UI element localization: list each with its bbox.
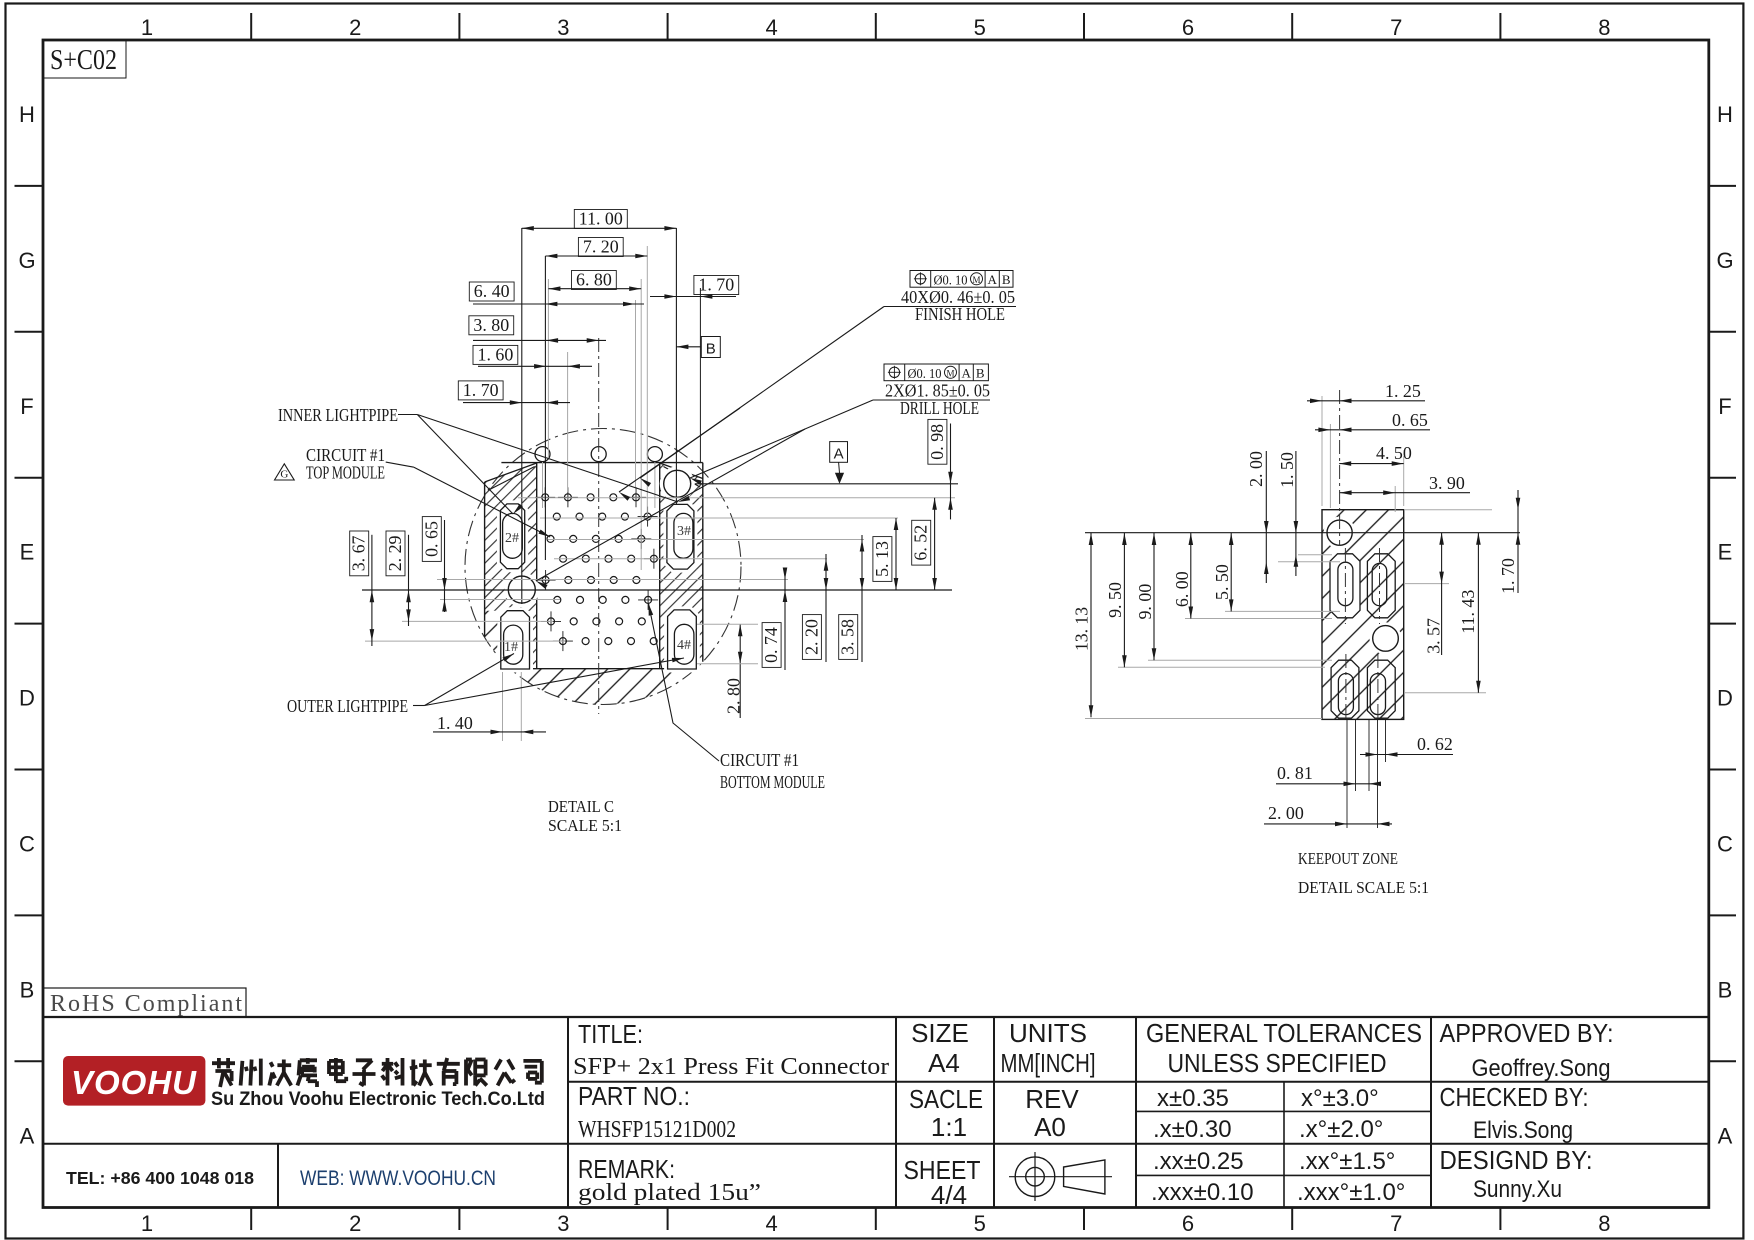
svg-text:F: F bbox=[20, 394, 33, 419]
svg-text:A: A bbox=[20, 1123, 35, 1148]
svg-text:3. 58: 3. 58 bbox=[838, 619, 858, 655]
svg-text:UNLESS SPECIFIED: UNLESS SPECIFIED bbox=[1168, 1048, 1387, 1078]
svg-text:9. 50: 9. 50 bbox=[1105, 582, 1125, 618]
svg-text:S+C02: S+C02 bbox=[50, 45, 117, 76]
svg-text:0. 98: 0. 98 bbox=[927, 424, 947, 460]
svg-text:C: C bbox=[1717, 832, 1733, 857]
svg-text:E: E bbox=[1718, 540, 1733, 565]
svg-text:11. 00: 11. 00 bbox=[579, 209, 623, 229]
svg-text:5. 50: 5. 50 bbox=[1212, 564, 1232, 600]
svg-text:E: E bbox=[20, 540, 35, 565]
svg-text:2. 20: 2. 20 bbox=[801, 619, 821, 655]
svg-text:KEEPOUT ZONE: KEEPOUT ZONE bbox=[1298, 849, 1398, 868]
svg-text:.xx°±1.5°: .xx°±1.5° bbox=[1299, 1148, 1395, 1175]
svg-text:TOP MODULE: TOP MODULE bbox=[306, 463, 385, 483]
svg-text:1. 70: 1. 70 bbox=[1498, 558, 1518, 594]
svg-text:5. 13: 5. 13 bbox=[872, 541, 892, 577]
svg-text:RoHS Compliant: RoHS Compliant bbox=[50, 991, 244, 1017]
svg-text:.xxx°±1.0°: .xxx°±1.0° bbox=[1297, 1179, 1405, 1206]
svg-text:6. 80: 6. 80 bbox=[576, 270, 612, 290]
svg-text:8: 8 bbox=[1598, 1211, 1610, 1236]
svg-text:G: G bbox=[1716, 248, 1733, 273]
svg-text:UNITS: UNITS bbox=[1009, 1018, 1087, 1048]
svg-text:C: C bbox=[19, 832, 35, 857]
svg-text:A0: A0 bbox=[1034, 1112, 1066, 1142]
svg-text:H: H bbox=[1717, 102, 1733, 127]
svg-text:OUTER LIGHTPIPE: OUTER LIGHTPIPE bbox=[287, 696, 408, 716]
svg-text:FINISH HOLE: FINISH HOLE bbox=[915, 304, 1005, 324]
svg-text:.xxx±0.10: .xxx±0.10 bbox=[1151, 1179, 1254, 1206]
svg-text:8: 8 bbox=[1598, 15, 1610, 40]
svg-text:INNER LIGHTPIPE: INNER LIGHTPIPE bbox=[278, 405, 398, 425]
svg-text:11. 43: 11. 43 bbox=[1458, 589, 1478, 633]
svg-text:5: 5 bbox=[974, 15, 986, 40]
svg-text:TEL: +86 400 1048 018: TEL: +86 400 1048 018 bbox=[66, 1168, 254, 1188]
svg-text:WHSFP15121D002: WHSFP15121D002 bbox=[578, 1117, 736, 1143]
svg-text:gold plated 15u”: gold plated 15u” bbox=[578, 1180, 761, 1206]
svg-text:1. 50: 1. 50 bbox=[1277, 452, 1297, 488]
svg-text:BOTTOM MODULE: BOTTOM MODULE bbox=[720, 772, 825, 792]
svg-text:1. 40: 1. 40 bbox=[437, 713, 473, 733]
svg-text:0. 65: 0. 65 bbox=[421, 521, 441, 557]
svg-text:Sunny.Xu: Sunny.Xu bbox=[1473, 1176, 1562, 1203]
svg-text:VOOHU: VOOHU bbox=[71, 1064, 197, 1101]
svg-text:3. 57: 3. 57 bbox=[1423, 618, 1443, 654]
svg-text:B: B bbox=[706, 341, 716, 358]
svg-text:APPROVED BY:: APPROVED BY: bbox=[1440, 1018, 1614, 1048]
svg-text:4: 4 bbox=[765, 15, 777, 40]
svg-text:1. 70: 1. 70 bbox=[463, 380, 499, 400]
svg-text:DETAIL C: DETAIL C bbox=[548, 797, 614, 816]
svg-text:1. 25: 1. 25 bbox=[1385, 381, 1421, 401]
svg-text:PART NO.:: PART NO.: bbox=[578, 1081, 690, 1111]
svg-text:5: 5 bbox=[974, 1211, 986, 1236]
svg-text:WEB: WWW.VOOHU.CN: WEB: WWW.VOOHU.CN bbox=[300, 1167, 496, 1190]
svg-text:.x°±2.0°: .x°±2.0° bbox=[1299, 1116, 1383, 1143]
svg-text:7: 7 bbox=[1390, 15, 1402, 40]
svg-text:2. 80: 2. 80 bbox=[724, 678, 744, 714]
svg-text:13. 13: 13. 13 bbox=[1072, 607, 1092, 651]
svg-text:CHECKED BY:: CHECKED BY: bbox=[1440, 1082, 1589, 1112]
svg-text:B: B bbox=[1002, 272, 1011, 287]
svg-text:9. 00: 9. 00 bbox=[1135, 583, 1155, 619]
svg-text:2: 2 bbox=[349, 15, 361, 40]
svg-text:A: A bbox=[988, 272, 998, 287]
svg-text:DESIGND BY:: DESIGND BY: bbox=[1440, 1145, 1593, 1175]
svg-text:A: A bbox=[962, 366, 972, 381]
svg-text:3. 80: 3. 80 bbox=[473, 315, 509, 335]
svg-text:4. 50: 4. 50 bbox=[1376, 443, 1412, 463]
svg-text:1#: 1# bbox=[504, 640, 518, 655]
svg-text:GENERAL TOLERANCES: GENERAL TOLERANCES bbox=[1146, 1018, 1422, 1048]
svg-text:1: 1 bbox=[141, 15, 153, 40]
svg-text:A: A bbox=[1718, 1123, 1733, 1148]
svg-text:2. 29: 2. 29 bbox=[385, 535, 405, 571]
svg-text:7: 7 bbox=[1390, 1211, 1402, 1236]
svg-text:G: G bbox=[18, 248, 35, 273]
svg-text:Su Zhou Voohu Electronic Tech.: Su Zhou Voohu Electronic Tech.Co.Ltd bbox=[211, 1089, 545, 1110]
svg-text:6. 52: 6. 52 bbox=[911, 525, 931, 561]
svg-text:6. 00: 6. 00 bbox=[1172, 571, 1192, 607]
svg-text:SFP+ 2x1 Press Fit Connector: SFP+ 2x1 Press Fit Connector bbox=[573, 1054, 889, 1080]
svg-text:1: 1 bbox=[141, 1211, 153, 1236]
svg-text:DETAIL SCALE 5:1: DETAIL SCALE 5:1 bbox=[1298, 878, 1429, 897]
svg-text:1:1: 1:1 bbox=[931, 1112, 967, 1142]
svg-text:B: B bbox=[976, 366, 985, 381]
svg-text:D: D bbox=[1717, 686, 1733, 711]
svg-text:4: 4 bbox=[765, 1211, 777, 1236]
svg-text:A: A bbox=[834, 446, 844, 463]
svg-text:Elvis.Song: Elvis.Song bbox=[1473, 1117, 1573, 1144]
svg-text:0. 81: 0. 81 bbox=[1277, 763, 1313, 783]
svg-text:.x±0.30: .x±0.30 bbox=[1153, 1116, 1232, 1143]
svg-text:4/4: 4/4 bbox=[931, 1180, 967, 1210]
svg-text:M: M bbox=[972, 275, 980, 285]
svg-text:F: F bbox=[1718, 394, 1731, 419]
svg-text:MM[INCH]: MM[INCH] bbox=[1001, 1048, 1096, 1078]
svg-text:SCALE 5:1: SCALE 5:1 bbox=[548, 816, 622, 835]
svg-text:B: B bbox=[1718, 977, 1733, 1002]
svg-text:DRILL HOLE: DRILL HOLE bbox=[900, 398, 979, 418]
svg-text:x±0.35: x±0.35 bbox=[1157, 1085, 1229, 1112]
svg-text:1. 60: 1. 60 bbox=[478, 344, 514, 364]
svg-text:2: 2 bbox=[349, 1211, 361, 1236]
svg-text:6: 6 bbox=[1182, 15, 1194, 40]
svg-text:2#: 2# bbox=[505, 531, 519, 546]
svg-text:3. 90: 3. 90 bbox=[1429, 473, 1465, 493]
svg-text:H: H bbox=[19, 102, 35, 127]
svg-text:D: D bbox=[19, 686, 35, 711]
svg-text:2. 00: 2. 00 bbox=[1246, 451, 1266, 487]
svg-text:3: 3 bbox=[557, 15, 569, 40]
svg-text:CIRCUIT #1: CIRCUIT #1 bbox=[720, 750, 799, 770]
svg-text:x°±3.0°: x°±3.0° bbox=[1301, 1085, 1379, 1112]
svg-text:4#: 4# bbox=[677, 638, 691, 653]
svg-text:3#: 3# bbox=[677, 524, 691, 539]
svg-text:G: G bbox=[280, 469, 288, 481]
svg-text:B: B bbox=[20, 977, 35, 1002]
svg-text:TITLE:: TITLE: bbox=[578, 1019, 643, 1049]
svg-text:Geoffrey.Song: Geoffrey.Song bbox=[1472, 1055, 1611, 1082]
svg-text:7. 20: 7. 20 bbox=[583, 237, 619, 257]
svg-text:A4: A4 bbox=[928, 1048, 960, 1078]
svg-text:0. 62: 0. 62 bbox=[1417, 734, 1453, 754]
svg-text:6: 6 bbox=[1182, 1211, 1194, 1236]
svg-text:REV: REV bbox=[1025, 1084, 1079, 1114]
svg-text:M: M bbox=[946, 369, 954, 379]
svg-text:SIZE: SIZE bbox=[911, 1018, 969, 1048]
svg-text:3. 67: 3. 67 bbox=[349, 535, 369, 571]
svg-text:6. 40: 6. 40 bbox=[474, 281, 510, 301]
svg-text:2. 00: 2. 00 bbox=[1268, 803, 1304, 823]
svg-text:.xx±0.25: .xx±0.25 bbox=[1153, 1148, 1244, 1175]
svg-text:0. 65: 0. 65 bbox=[1392, 410, 1428, 430]
svg-text:SACLE: SACLE bbox=[909, 1084, 983, 1114]
svg-text:3: 3 bbox=[557, 1211, 569, 1236]
svg-text:0. 74: 0. 74 bbox=[761, 627, 781, 663]
svg-text:1. 70: 1. 70 bbox=[698, 275, 734, 295]
